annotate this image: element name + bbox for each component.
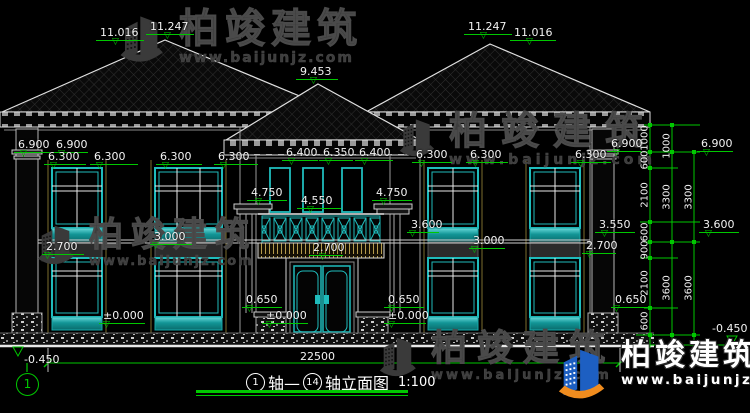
axis-end-bubble: 14 [303,373,322,392]
right-eave [364,112,650,127]
center-block [234,168,412,345]
axis-start-bubble: 1 [246,373,265,392]
balcony-railing [262,216,380,243]
elevation-drawing [0,0,750,413]
scale-label: 1:100 [398,375,435,390]
center-eave [224,140,422,155]
axis-bubble-1: 1 [16,373,39,396]
door-handle [315,295,320,304]
left-roof [2,40,338,112]
right-roof [366,44,650,112]
title-underline-thick [196,390,408,393]
balcony-fascia [258,243,384,258]
left-pilaster [12,129,42,345]
total-width-dimension: 22500 [300,350,335,363]
title-underline-thin [196,395,408,396]
door-handle [324,295,329,304]
ground-strip [0,333,654,345]
right-pilaster [588,129,618,345]
cad-elevation-screenshot: 柏竣建筑 www.baijunjz.com 柏竣建筑 www.baijunjz.… [0,0,750,413]
